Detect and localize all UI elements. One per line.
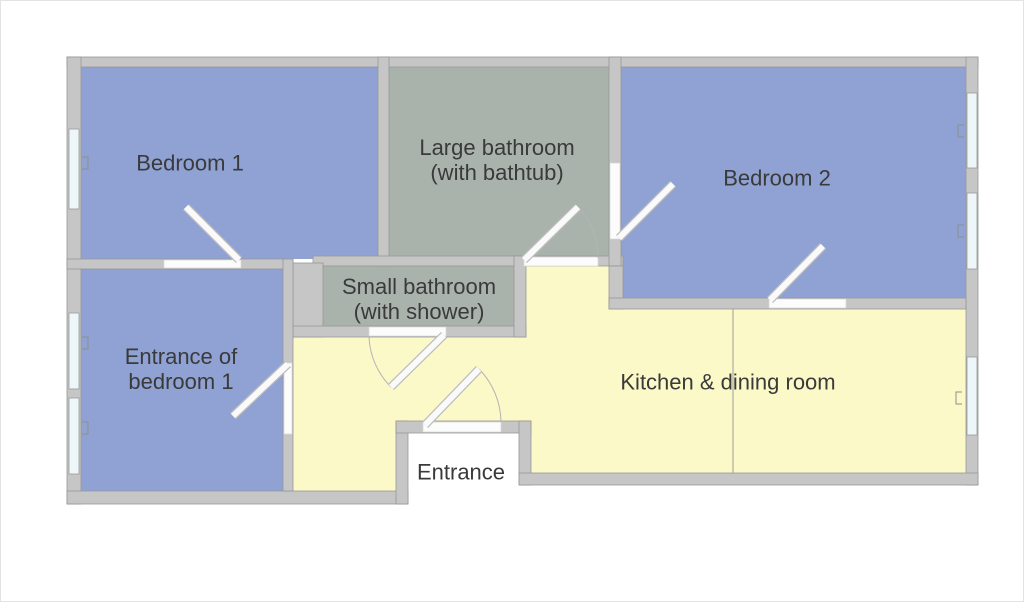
door-threshold: [610, 163, 620, 239]
window-glass: [69, 313, 79, 389]
window-glass: [967, 93, 977, 168]
window-glass: [69, 398, 79, 474]
floor-plan-drawing: [1, 1, 1024, 602]
room-label-large-bathroom: Large bathroom (with bathtub): [419, 135, 574, 185]
door-threshold: [423, 422, 501, 432]
door-threshold: [524, 257, 598, 266]
wall-segment: [67, 491, 408, 504]
door-threshold: [369, 327, 446, 336]
wall-segment: [67, 57, 978, 67]
window-glass: [967, 193, 977, 269]
window-glass: [967, 357, 977, 435]
door-threshold: [284, 363, 292, 434]
wall-segment: [378, 57, 389, 266]
wall-segment: [519, 473, 978, 485]
floor-plan: Bedroom 1 Large bathroom (with bathtub) …: [0, 0, 1024, 602]
door-threshold: [164, 260, 241, 268]
window-glass: [69, 129, 79, 209]
room-label-bedroom-1: Bedroom 1: [136, 151, 244, 176]
room-label-entrance: Entrance: [417, 460, 505, 485]
wall-segment: [396, 421, 408, 504]
room-label-small-bathroom: Small bathroom (with shower): [342, 274, 496, 324]
room-label-bedroom-2: Bedroom 2: [723, 166, 831, 191]
room-label-kitchen-dining: Kitchen & dining room: [620, 370, 835, 395]
wall-segment: [514, 256, 526, 337]
room-label-entrance-bedroom-1: Entrance of bedroom 1: [125, 344, 238, 394]
door-threshold: [769, 299, 846, 308]
